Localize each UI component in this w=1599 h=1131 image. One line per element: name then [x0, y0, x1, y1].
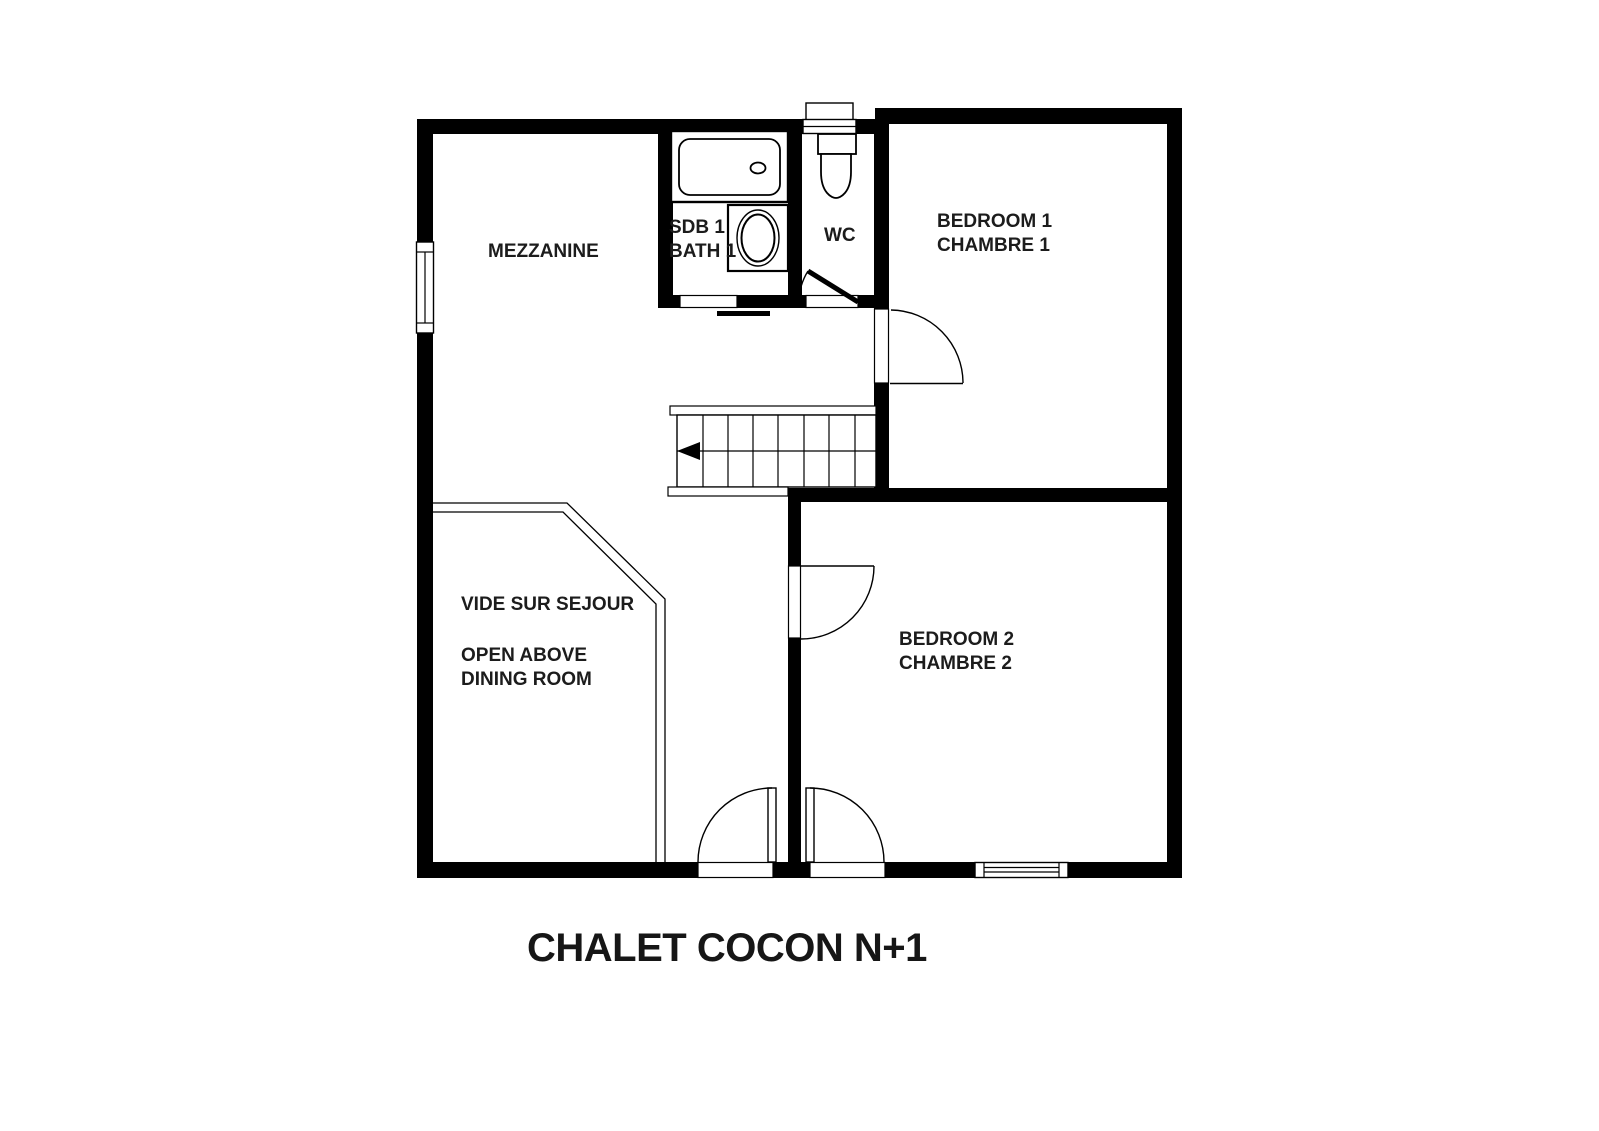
label-mezzanine: MEZZANINE	[488, 240, 599, 264]
plan-title: CHALET COCON N+1	[527, 926, 927, 971]
label-bedroom1-line1: BEDROOM 1	[937, 210, 1052, 234]
label-void-english: OPEN ABOVE DINING ROOM	[461, 644, 657, 692]
wall-bath-bottom-b	[737, 295, 788, 308]
label-void-french: VIDE SUR SEJOUR	[461, 593, 634, 617]
wall-wc-right-upper	[874, 119, 889, 309]
floorplan-page: MEZZANINE SDB 1 BATH 1 WC BEDROOM 1 CHAM…	[0, 0, 1599, 1131]
bedroom2-balcony-door	[806, 788, 884, 862]
wall-bedroom2-left-lower	[788, 638, 801, 862]
wall-wc-bottom-a	[788, 295, 806, 308]
wall-right	[1167, 108, 1182, 878]
window-bottom-wall	[975, 863, 1068, 878]
label-bedroom2-line1: BEDROOM 2	[899, 628, 1014, 652]
label-bedroom2-line2: CHAMBRE 2	[899, 652, 1014, 676]
window-top-wall	[803, 103, 856, 134]
sink-icon	[728, 205, 788, 271]
label-wc: WC	[824, 224, 856, 248]
bedroom2-balcony-door-opening	[810, 863, 885, 878]
toilet-icon	[818, 134, 856, 198]
label-bedroom1: BEDROOM 1 CHAMBRE 1	[937, 210, 1052, 258]
wall-bedroom2-left-upper	[788, 488, 801, 566]
wall-bath-wc-divider	[788, 134, 802, 308]
bath-door-opening	[680, 296, 737, 308]
wall-mid-horizontal	[788, 488, 1167, 502]
bedroom1-door-opening	[875, 309, 889, 383]
stair-bottom-rail	[668, 487, 788, 496]
label-bedroom1-line2: CHAMBRE 1	[937, 234, 1052, 258]
bedroom2-door-opening	[789, 566, 801, 638]
window-left-wall	[417, 242, 434, 333]
label-bath1-line2: BATH 1	[669, 240, 736, 264]
staircase	[668, 406, 876, 496]
hall-balcony-door-opening	[698, 863, 773, 878]
wall-left	[417, 119, 433, 862]
wall-bath-bottom-a	[658, 295, 680, 308]
wall-wc-bottom-b	[858, 295, 889, 308]
bedroom2-door	[801, 566, 874, 639]
bedroom1-door	[890, 310, 963, 384]
hall-balcony-door	[698, 788, 776, 862]
stair-top-rail	[670, 406, 876, 415]
door-openings	[680, 296, 889, 878]
label-bath1-line1: SDB 1	[669, 216, 736, 240]
bath-door-threshold	[717, 311, 770, 316]
wall-top-right	[875, 108, 1182, 124]
label-bedroom2: BEDROOM 2 CHAMBRE 2	[899, 628, 1014, 676]
bathtub-icon	[671, 131, 788, 202]
door-swings	[698, 271, 963, 862]
label-bath1: SDB 1 BATH 1	[669, 216, 736, 264]
